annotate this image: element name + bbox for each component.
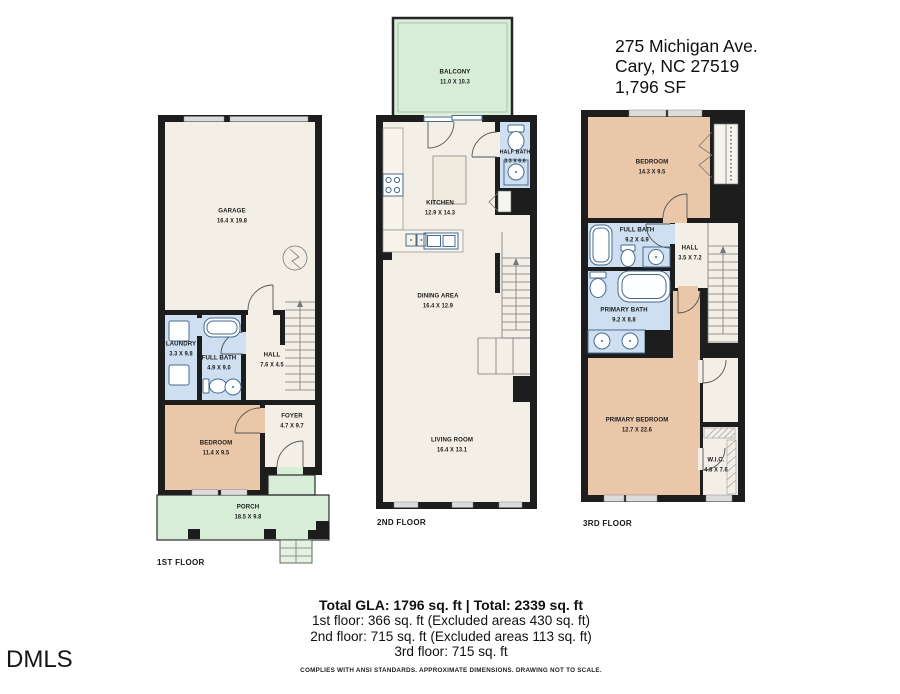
- room-label-bedroom-1: BEDROOM11.4 X 9.5: [200, 439, 233, 458]
- toilet-icon: [508, 125, 524, 151]
- kitchen-island: [433, 156, 466, 204]
- address-sqft: 1,796 SF: [615, 77, 758, 97]
- porch-steps: [280, 540, 312, 563]
- toilet-icon: [621, 245, 635, 267]
- floor-plan-drawing: [0, 0, 900, 694]
- room-label-porch: PORCH18.5 X 9.8: [235, 503, 262, 522]
- room-label-dining: DINING AREA16.4 X 12.9: [417, 292, 458, 311]
- room-label-hall-3: HALL3.5 X 7.2: [678, 244, 701, 263]
- floor-label-2: 2ND FLOOR: [377, 518, 426, 527]
- stairs-third-floor: [708, 223, 738, 343]
- summary-floor1: 1st floor: 366 sq. ft (Excluded areas 43…: [151, 613, 751, 629]
- room-label-bedroom-3: BEDROOM14.3 X 9.5: [636, 158, 669, 177]
- room-label-living: LIVING ROOM16.4 X 13.1: [431, 436, 473, 455]
- room-label-garage: GARAGE16.4 X 19.8: [217, 207, 247, 226]
- room-label-kitchen: KITCHEN12.9 X 14.3: [425, 199, 455, 218]
- room-label-full-bath-1: FULL BATH4.9 X 9.0: [202, 354, 237, 373]
- room-label-primary-bedroom: PRIMARY BEDROOM12.7 X 22.6: [606, 416, 669, 435]
- bathtub-icon: [618, 271, 670, 302]
- bathtub-icon: [590, 225, 612, 265]
- summary-total: Total GLA: 1796 sq. ft | Total: 2339 sq.…: [151, 597, 751, 613]
- floor-label-1: 1ST FLOOR: [157, 558, 205, 567]
- room-label-primary-bath: PRIMARY BATH9.2 X 8.8: [600, 306, 647, 325]
- room-label-full-bath-3: FULL BATH9.2 X 4.9: [620, 226, 655, 245]
- room-label-foyer: FOYER4.7 X 9.7: [280, 412, 303, 431]
- property-address: 275 Michigan Ave. Cary, NC 27519 1,796 S…: [615, 36, 758, 97]
- toilet-icon: [203, 379, 227, 393]
- floor-plan-page: 275 Michigan Ave. Cary, NC 27519 1,796 S…: [0, 0, 900, 694]
- address-line1: 275 Michigan Ave.: [615, 36, 758, 56]
- floor-label-3: 3RD FLOOR: [583, 519, 632, 528]
- room-label-wic: W.I.C.4.8 X 7.6: [704, 456, 727, 475]
- bathtub-icon: [204, 318, 240, 337]
- summary-floor2: 2nd floor: 715 sq. ft (Excluded areas 11…: [151, 629, 751, 645]
- area-summary: Total GLA: 1796 sq. ft | Total: 2339 sq.…: [151, 597, 751, 674]
- address-line2: Cary, NC 27519: [615, 56, 758, 76]
- room-label-balcony: BALCONY11.0 X 10.3: [440, 68, 471, 87]
- dmls-logo: DMLS: [6, 646, 73, 674]
- toilet-icon: [590, 272, 606, 298]
- stove-icon: [383, 174, 403, 196]
- summary-disclaimer: COMPLIES WITH ANSI STANDARDS. APPROXIMAT…: [151, 667, 751, 674]
- sink-icon: [225, 379, 241, 395]
- room-label-hall-1: HALL7.6 X 4.5: [260, 351, 283, 370]
- room-label-laundry: LAUNDRY3.3 X 9.8: [166, 340, 196, 359]
- room-label-half-bath: HALF BATH3.3 X 6.6: [500, 149, 531, 166]
- summary-floor3: 3rd floor: 715 sq. ft: [151, 644, 751, 660]
